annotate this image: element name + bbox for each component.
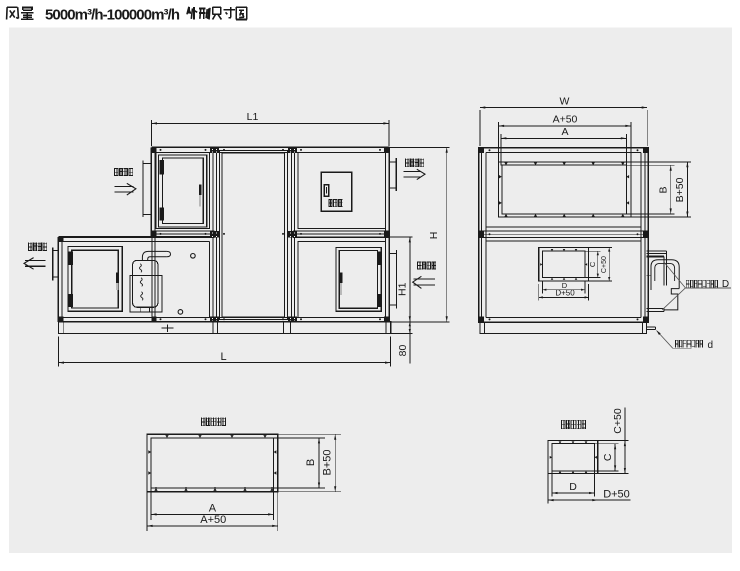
svg-text:d: d (708, 340, 714, 351)
svg-text:C: C (588, 261, 597, 267)
svg-text:L: L (220, 351, 226, 363)
svg-text:H1: H1 (397, 282, 409, 296)
svg-text:A+50: A+50 (200, 514, 226, 526)
svg-text:C: C (602, 453, 614, 461)
svg-text:W: W (560, 95, 570, 107)
svg-text:C+50: C+50 (612, 408, 624, 434)
svg-text:80: 80 (397, 345, 409, 357)
svg-text:A: A (209, 502, 217, 514)
svg-text:B: B (658, 186, 670, 193)
svg-text:B+50: B+50 (322, 450, 334, 476)
svg-text:B+50: B+50 (674, 177, 686, 202)
svg-text:L1: L1 (247, 111, 259, 123)
svg-text:B: B (305, 459, 317, 466)
svg-text:D: D (569, 481, 577, 493)
svg-text:A: A (561, 126, 568, 138)
svg-text:A+50: A+50 (553, 114, 578, 126)
svg-text:D+50: D+50 (555, 289, 575, 298)
svg-text:D+50: D+50 (603, 489, 630, 501)
svg-text:D: D (722, 279, 729, 290)
svg-text:5000m³/h-100000m³/h: 5000m³/h-100000m³/h (45, 6, 180, 23)
svg-text:H: H (428, 232, 440, 240)
svg-text:C+50: C+50 (601, 256, 608, 273)
